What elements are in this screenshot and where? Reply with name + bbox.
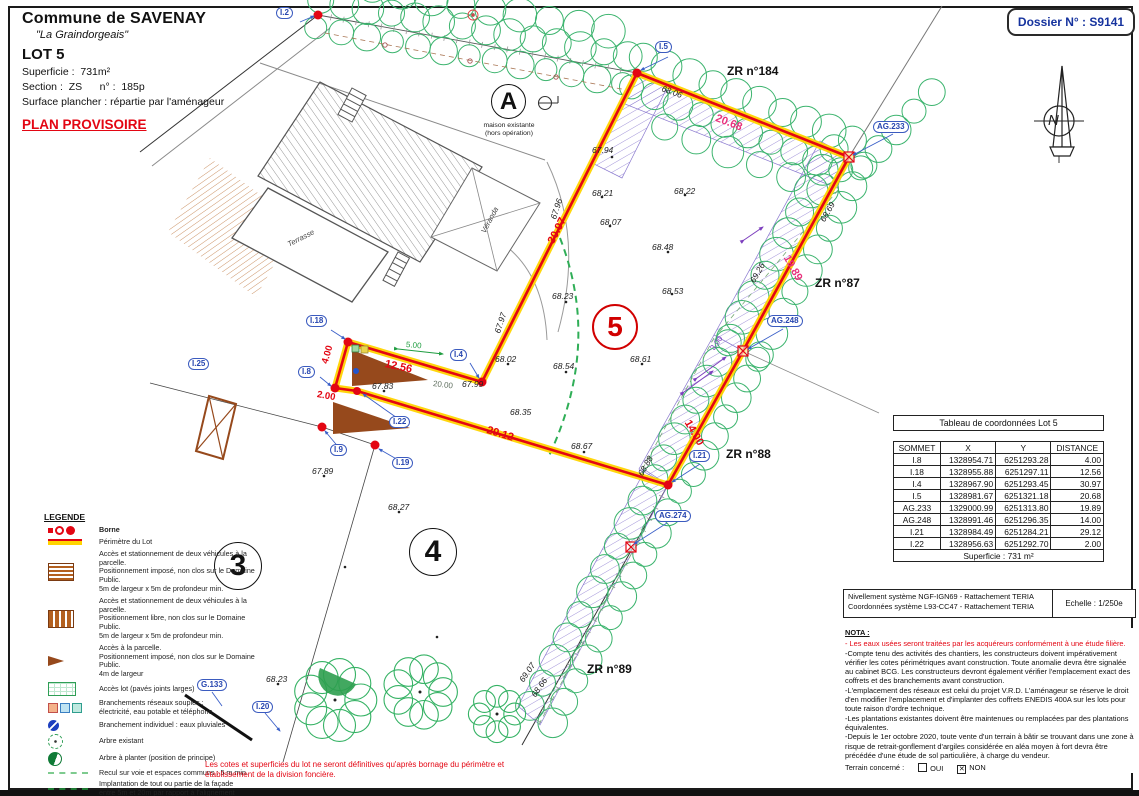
dossier-number-box: Dossier N° : S9141: [1007, 8, 1135, 36]
oui-checkbox: [918, 763, 927, 772]
vertex-label-ag248: AG.248: [767, 315, 803, 327]
coordinate-system: Coordonnées système L93-CC47 - Rattachem…: [848, 602, 1048, 612]
legend-item: Branchements réseaux souples : électrici…: [44, 699, 262, 717]
coord-table-header: SOMMETXYDISTANCE: [894, 442, 1104, 454]
lot-title: LOT 5: [22, 46, 322, 63]
elevation-label: 68.23: [552, 291, 573, 301]
elevation-label: 68.67: [571, 441, 592, 451]
elevation-label: 67.89: [312, 466, 333, 476]
legend-item: Branchement individuel : eaux pluviales: [44, 720, 262, 731]
lot4-number: 4: [409, 528, 457, 576]
vertex-label-ag274: AG.274: [655, 510, 691, 522]
nota-paragraph: -Compte tenu des activités des chantiers…: [845, 649, 1134, 686]
table-row: AG.2481328991.466251296.3514.00: [894, 514, 1104, 526]
nota-block: NOTA : - Les eaux usées seront traitées …: [845, 628, 1134, 773]
table-row: I.41328967.906251293.4530.97: [894, 478, 1104, 490]
vertex-label-i22: I.22: [389, 416, 410, 428]
elevation-label: 68.02: [495, 354, 516, 364]
legend-title: LEGENDE: [44, 512, 262, 522]
coord-table-footer: Superficie : 731 m²: [894, 550, 1104, 562]
legend-items: BornePérimètre du LotAccès et stationnem…: [44, 526, 262, 796]
arrow-icon: [44, 656, 92, 666]
levelling-system: Nivellement système NGF-IGN69 - Rattache…: [848, 592, 1048, 602]
legend-item: Accès et stationnement de deux véhicules…: [44, 597, 262, 641]
parcel-zr184: ZR n°184: [727, 64, 778, 78]
legend-item-label: Accès lot (pavés joints larges): [99, 685, 194, 694]
terrain-label: Terrain concerné :: [845, 763, 904, 772]
a-survey-symbol: [539, 96, 559, 110]
vertex-label-i25: I.25: [188, 358, 209, 370]
nota-paragraph: -Les plantations existantes doivent être…: [845, 714, 1134, 733]
elevation-label: 68.48: [652, 242, 673, 252]
legend: LEGENDE BornePérimètre du LotAccès et st…: [44, 512, 262, 796]
non-aedificandi-zones: [518, 73, 849, 725]
zone-a-circle: A: [491, 84, 526, 119]
legend-item-label: Accès et stationnement de deux véhicules…: [99, 597, 262, 641]
elevation-label: 68.54: [553, 361, 574, 371]
surface-plancher-line: Surface plancher : répartie par l'aménag…: [22, 96, 322, 108]
legend-item: Arbre existant: [44, 734, 262, 749]
lot5-number: 5: [592, 304, 638, 350]
table-row: I.211328984.496251284.2129.12: [894, 526, 1104, 538]
acc1-icon: [44, 563, 92, 581]
legend-item-label: Branchement individuel : eaux pluviales: [99, 721, 225, 730]
legend-item-label: Accès et stationnement de deux véhicules…: [99, 550, 262, 594]
parcel-zr87: ZR n°87: [815, 276, 860, 290]
legend-item-label: Borne: [99, 526, 120, 535]
vertex-label-i5: I.5: [655, 41, 672, 53]
title-block: Commune de SAVENAY "La Graindorgeais" LO…: [22, 10, 322, 132]
scale-label: Echelle : 1/250e: [1052, 590, 1135, 617]
reference-box: Nivellement système NGF-IGN69 - Rattache…: [843, 589, 1136, 618]
table-row: I.181328955.886251297.1112.56: [894, 466, 1104, 478]
nota-paragraph: -Depuis le 1er octobre 2020, toute vente…: [845, 732, 1134, 760]
north-arrow: [1034, 66, 1084, 163]
coordinate-table: Tableau de coordonnées Lot 5 SOMMETXYDIS…: [893, 415, 1104, 562]
nota-paragraph: -L'emplacement des réseaux est celui du …: [845, 686, 1134, 714]
coordinate-table-title: Tableau de coordonnées Lot 5: [893, 415, 1104, 431]
superficie-line: Superficie : 731m²: [22, 66, 322, 78]
legend-item: Périmètre du Lot: [44, 538, 262, 547]
legend-item: Implantation de tout ou partie de la faç…: [44, 780, 262, 796]
paves-icon: [44, 682, 92, 696]
dash-dark-icon: [44, 788, 92, 790]
acc2-icon: [44, 610, 92, 628]
peri-icon: [44, 539, 92, 545]
rain-icon: [44, 720, 92, 731]
legend-item: Accès à la parcelle. Positionnement impo…: [44, 644, 262, 679]
tree-ex-icon: [44, 734, 92, 749]
vertex-label-i2: I.2: [276, 7, 293, 19]
legend-item-label: Arbre à planter (position de principe): [99, 754, 215, 763]
legend-item: Borne: [44, 526, 262, 535]
borne-icon: [44, 526, 92, 535]
elevation-label: 68.07: [600, 217, 621, 227]
vertex-label-i21: I.21: [689, 450, 710, 462]
terrain-non-option: ✕NON: [957, 763, 985, 773]
table-row: I.51328981.676251321.1820.68: [894, 490, 1104, 502]
vertex-label-ag233: AG.233: [873, 121, 909, 133]
elevation-label: 67.99: [462, 379, 483, 389]
table-row: AG.2331329000.996251313.8019.89: [894, 502, 1104, 514]
legend-item: Accès et stationnement de deux véhicules…: [44, 550, 262, 594]
vertex-label-i8: I.8: [298, 366, 315, 378]
coord-table-body: I.81328954.716251293.284.00I.181328955.8…: [894, 454, 1104, 550]
north-letter: N: [1048, 112, 1059, 129]
elevation-label: 68.27: [388, 502, 409, 512]
legend-item-label: Arbre existant: [99, 737, 143, 746]
setback-arc: [548, 238, 578, 458]
dash-light-icon: [44, 772, 92, 774]
elevation-label: 67.83: [372, 381, 393, 391]
terrain-oui-option: OUI: [918, 762, 943, 773]
parcel-zr88: ZR n°88: [726, 447, 771, 461]
elevation-label: 68.61: [630, 354, 651, 364]
vertex-label-i18: I.18: [306, 315, 327, 327]
elevation-label: 68.35: [510, 407, 531, 417]
elevation-label: 68.53: [662, 286, 683, 296]
vertex-label-i4: I.4: [450, 349, 467, 361]
plan-sheet: Commune de SAVENAY "La Graindorgeais" LO…: [0, 0, 1139, 796]
trees: [295, 655, 526, 743]
table-row: I.81328954.716251293.284.00: [894, 454, 1104, 466]
legend-item-label: Accès à la parcelle. Positionnement impo…: [99, 644, 262, 679]
nota-red-line: - Les eaux usées seront traitées par les…: [845, 639, 1134, 648]
tree-pl-icon: [44, 752, 92, 766]
vertex-label-i19: I.19: [392, 457, 413, 469]
branch-icon: [44, 703, 92, 713]
legend-item: Accès lot (pavés joints larges): [44, 682, 262, 696]
vertex-label-i9: I.9: [330, 444, 347, 456]
legend-item-label: Implantation de tout ou partie de la faç…: [99, 780, 235, 796]
legend-item-label: Branchements réseaux souples : électrici…: [99, 699, 212, 717]
maison-existante-label: maison existante (hors opération): [468, 122, 550, 138]
place-name: "La Graindorgeais": [36, 29, 322, 41]
table-row: I.221328956.636251292.702.00: [894, 538, 1104, 550]
elevation-label: 68.23: [266, 674, 287, 684]
non-checkbox-checked: ✕: [957, 765, 966, 774]
red-footnote: Les cotes et superficies du lot ne seron…: [205, 760, 504, 780]
section-line: Section : ZS n° : 185p: [22, 81, 322, 93]
elevation-label: 67.94: [592, 145, 613, 155]
parcel-zr89: ZR n°89: [587, 662, 632, 676]
dim-5m-label: 5.00: [406, 340, 422, 350]
legend-item-label: Périmètre du Lot: [99, 538, 152, 547]
elevation-label: 68.22: [674, 186, 695, 196]
nota-title: NOTA :: [845, 628, 1134, 637]
plan-status: PLAN PROVISOIRE: [22, 117, 322, 132]
elevation-label: 68.21: [592, 188, 613, 198]
